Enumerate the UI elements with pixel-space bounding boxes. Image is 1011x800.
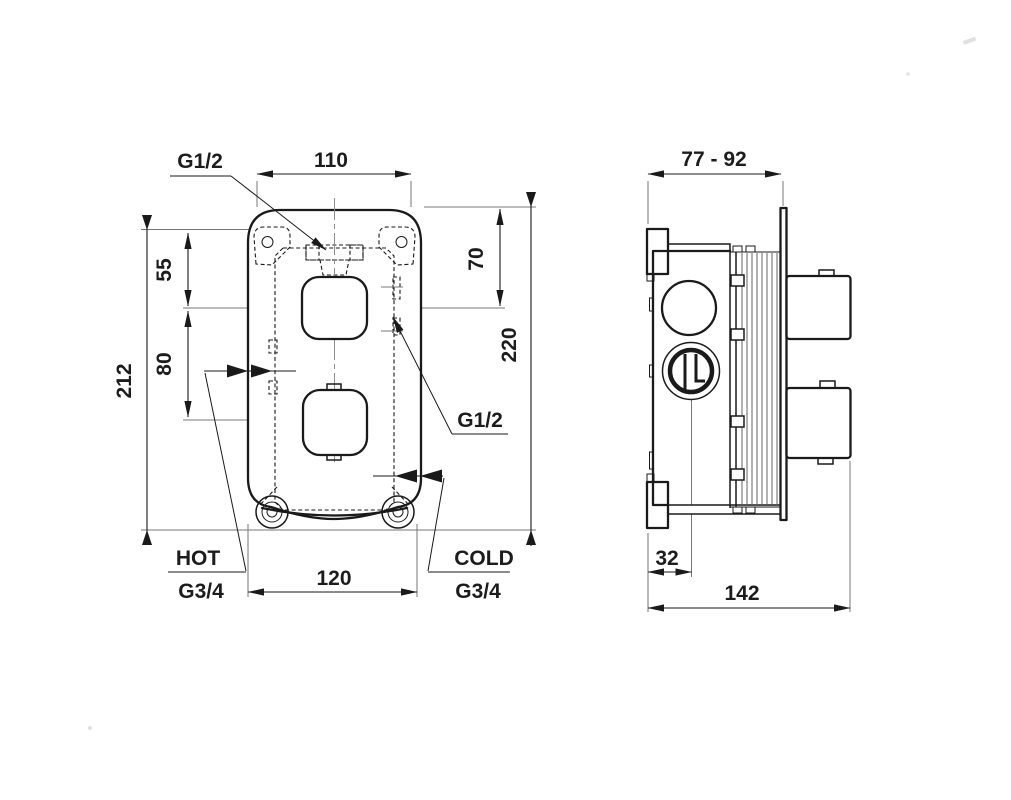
retaining-clip bbox=[731, 469, 744, 480]
retaining-clip bbox=[731, 275, 744, 286]
retaining-clip bbox=[731, 329, 744, 340]
upper-handle-side bbox=[787, 276, 851, 339]
dim-top-width: 110 bbox=[257, 149, 411, 174]
hot-thread-label: G3/4 bbox=[178, 580, 224, 603]
valve-installation-drawing: 110 55 80 212 220 70 120 bbox=[0, 0, 1011, 800]
lower-handle-front bbox=[303, 390, 367, 455]
dim-overall-depth-label: 142 bbox=[724, 582, 759, 605]
dim-top-to-handle-label: 70 bbox=[465, 247, 488, 270]
threaded-sleeve bbox=[730, 246, 780, 513]
hot-label: HOT bbox=[176, 547, 221, 570]
upper-handle-front bbox=[302, 277, 367, 339]
dim-overall-height: 220 bbox=[498, 192, 536, 546]
cold-callout: COLD G3/4 bbox=[428, 478, 514, 603]
dim-top-width-label: 110 bbox=[314, 149, 348, 172]
upper-port-boss bbox=[662, 281, 716, 335]
hot-callout: HOT G3/4 bbox=[168, 373, 246, 603]
lower-handle-side bbox=[787, 388, 851, 458]
bottom-rail bbox=[666, 505, 783, 514]
dim-cartridge-offset-label: 32 bbox=[655, 547, 678, 570]
dim-install-depth-label: 77 - 92 bbox=[681, 148, 746, 171]
side-outlet-label: G1/2 bbox=[457, 409, 503, 432]
dim-screw-to-center: 55 bbox=[153, 233, 188, 306]
dim-bottom-width: 120 bbox=[248, 567, 417, 592]
dim-screw-to-center-label: 55 bbox=[153, 258, 176, 282]
dim-top-to-handle: 70 bbox=[465, 209, 500, 306]
technical-drawing-page: 110 55 80 212 220 70 120 bbox=[0, 0, 1011, 800]
dim-mount-height: 212 bbox=[113, 215, 152, 545]
dim-bottom-width-label: 120 bbox=[316, 567, 351, 590]
top-outlet-label: G1/2 bbox=[177, 150, 223, 173]
dim-overall-height-label: 220 bbox=[498, 327, 521, 362]
cold-thread-label: G3/4 bbox=[455, 580, 501, 603]
thermostat-cartridge bbox=[663, 343, 720, 400]
front-view: 110 55 80 212 220 70 120 bbox=[113, 149, 536, 603]
dim-cartridge-offset: 32 bbox=[648, 547, 692, 572]
scan-artifacts bbox=[88, 37, 976, 730]
dim-overall-depth: 142 bbox=[648, 582, 850, 608]
cold-label: COLD bbox=[454, 547, 514, 570]
dim-handle-spacing: 80 bbox=[153, 311, 188, 417]
wall-plate bbox=[781, 208, 787, 520]
dim-handle-spacing-label: 80 bbox=[153, 352, 176, 375]
side-view: 77 - 92 32 142 bbox=[647, 148, 851, 612]
retaining-clip bbox=[731, 416, 744, 427]
dim-install-depth: 77 - 92 bbox=[648, 148, 781, 174]
dim-mount-height-label: 212 bbox=[113, 363, 136, 398]
